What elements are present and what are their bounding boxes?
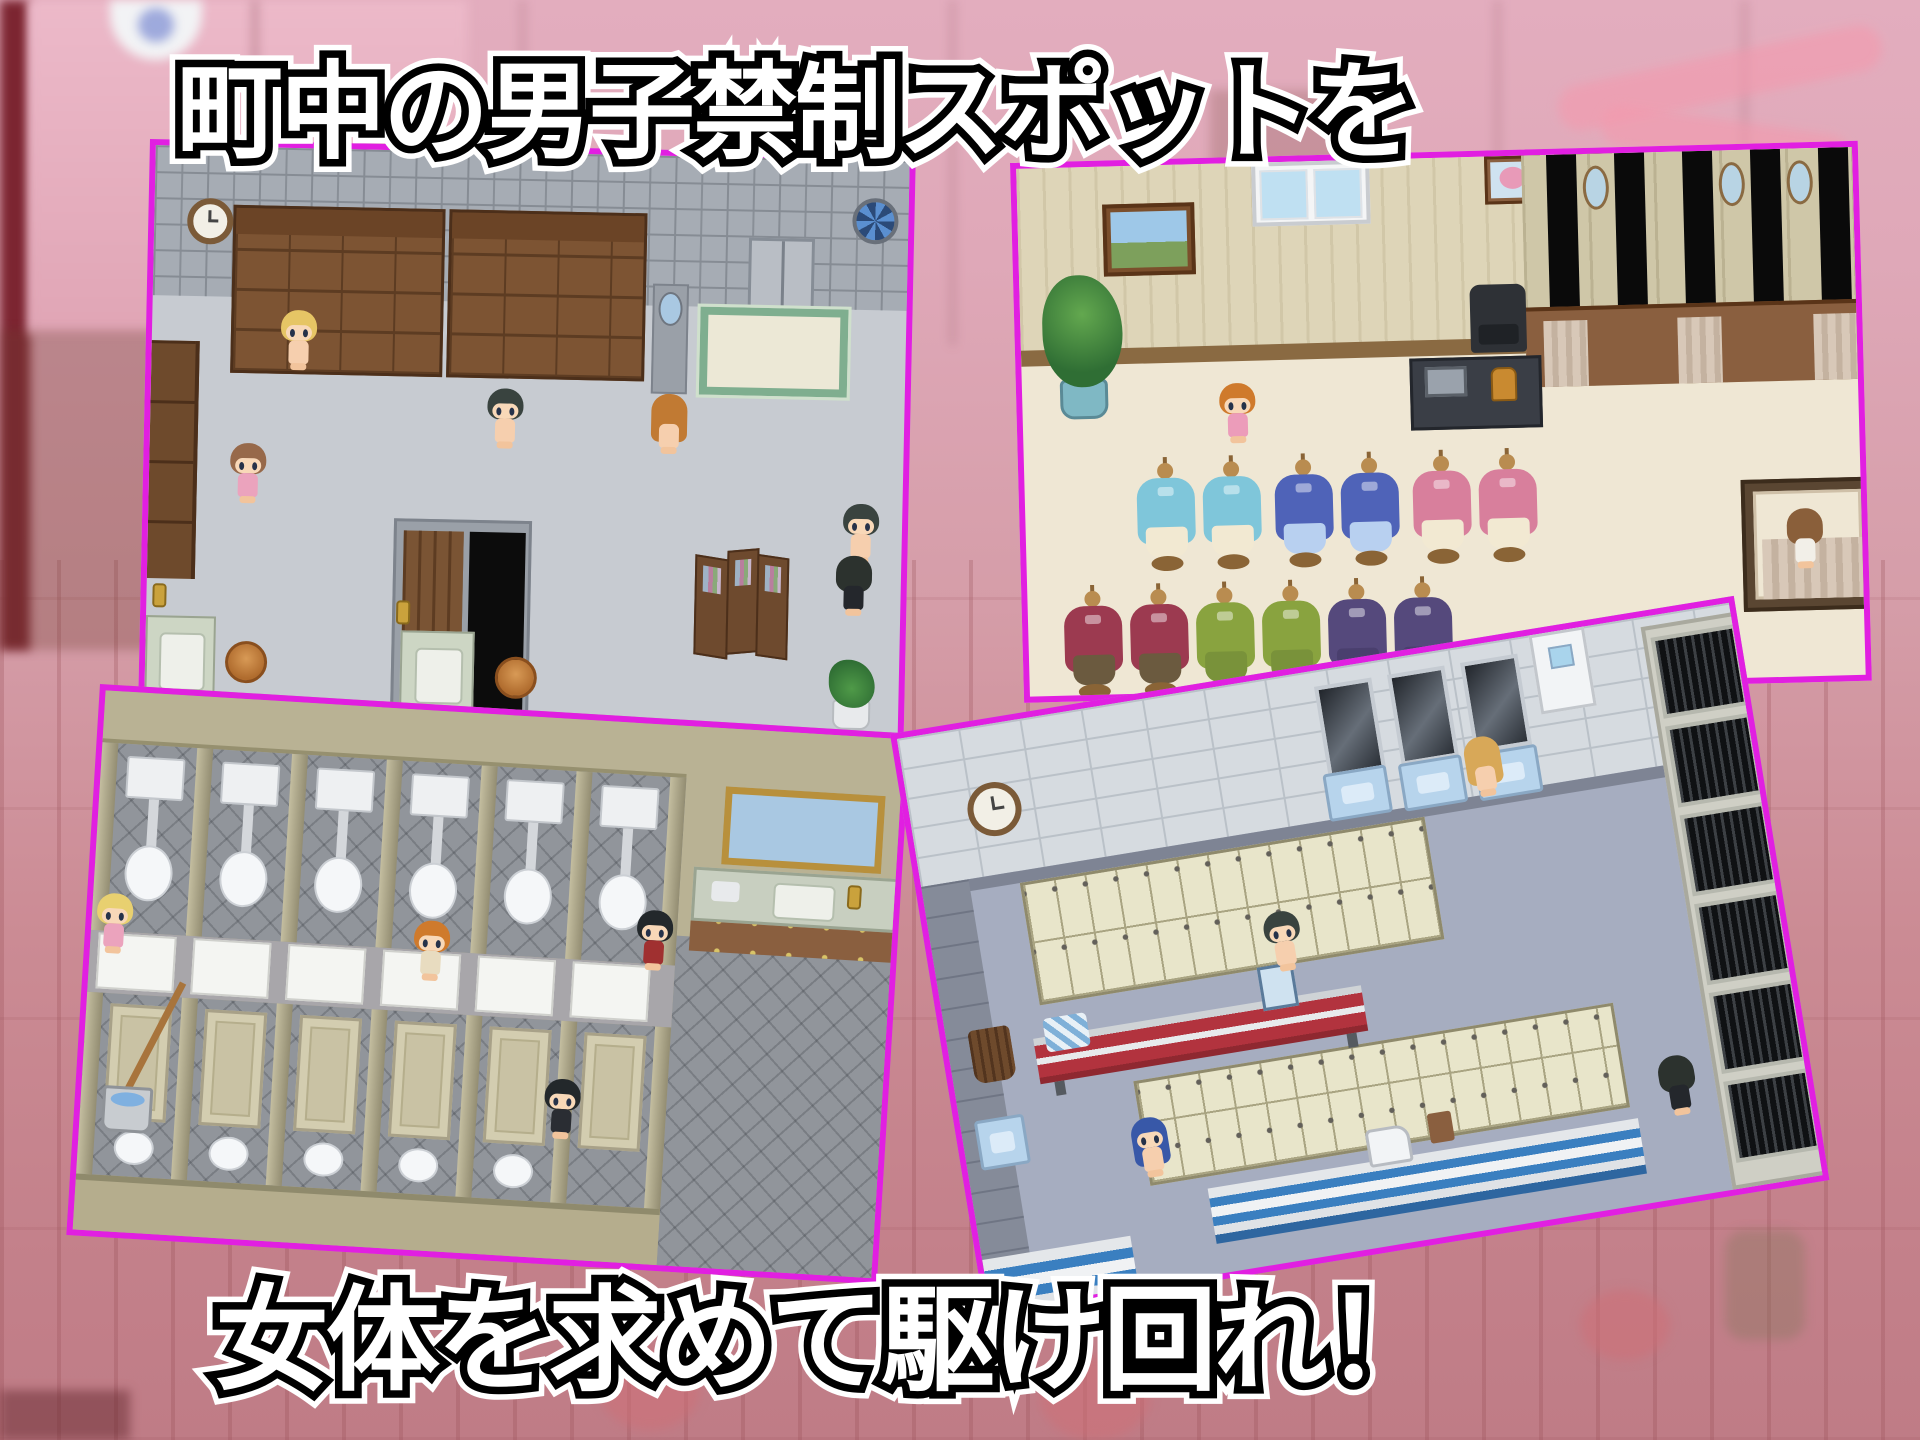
headline-top-fill: 町中の男子禁制スポットを <box>170 26 1420 180</box>
chibi-character <box>649 394 688 457</box>
mannequin-head <box>1084 591 1100 607</box>
chibi-character <box>228 443 267 506</box>
toilet-tank <box>220 762 280 807</box>
towel <box>1042 1012 1091 1053</box>
vent-grate <box>1694 890 1792 985</box>
mannequin-head <box>1348 584 1364 600</box>
mannequin-bow <box>1295 483 1311 492</box>
background-stool-blob <box>1580 1290 1670 1360</box>
white-stall-door <box>475 956 556 1017</box>
dress-mannequin <box>1136 462 1197 571</box>
chibi-character <box>1218 383 1258 446</box>
headline-bottom: 女体を求めて駆け回れ！ 女体を求めて駆け回れ！ 女体を求めて駆け回れ！ <box>215 1248 1355 1388</box>
chair-seat <box>1478 324 1519 345</box>
mannequin-skirt <box>1212 525 1255 556</box>
laundry-basket <box>967 1025 1017 1085</box>
headline-bottom-fill: 女体を求めて駆け回れ！ <box>215 1248 1355 1413</box>
soap-bottle <box>396 600 410 624</box>
folding-screen <box>693 554 729 659</box>
character-face <box>492 403 518 419</box>
character-face <box>235 458 261 474</box>
character-body <box>1668 1084 1692 1111</box>
screenshot-changing-room <box>138 139 916 747</box>
dress-mannequin <box>1340 457 1401 566</box>
toilet-tank <box>599 785 659 830</box>
character-body <box>659 424 679 448</box>
table-clock-icon <box>1491 367 1518 402</box>
bucket-water <box>110 1091 145 1107</box>
background-figure-blur <box>1725 1230 1805 1340</box>
character-body <box>550 1108 571 1133</box>
gold-mirror <box>721 786 885 874</box>
cubby-shelf <box>446 209 647 381</box>
character-body <box>1141 1146 1165 1173</box>
character-face <box>418 935 445 952</box>
character-face <box>1224 398 1250 414</box>
mannequin-head <box>1223 461 1239 477</box>
character-body <box>420 950 441 975</box>
bench-leg <box>1054 1080 1066 1095</box>
mannequin-bow <box>1361 481 1377 490</box>
folding-screen <box>725 548 759 655</box>
character-body <box>850 534 870 558</box>
elevator-door-split <box>781 241 785 309</box>
chibi-character <box>1655 1053 1703 1120</box>
mannequin-head <box>1433 456 1449 472</box>
towel-stack <box>711 881 740 903</box>
shelf-top <box>452 212 645 242</box>
character-body <box>495 418 515 442</box>
curtain <box>1677 316 1723 383</box>
vent-grate <box>1709 979 1807 1074</box>
mannequin-head <box>1361 457 1377 473</box>
chibi-character <box>410 920 452 984</box>
dress-mannequin <box>1478 453 1539 562</box>
mannequin-skirt <box>1350 521 1393 552</box>
fitting-room-lower-wall <box>1525 299 1870 388</box>
door-window <box>1548 644 1575 670</box>
mannequin-bow <box>1349 608 1365 617</box>
vent-grate <box>1723 1068 1821 1163</box>
chibi-character <box>486 388 525 451</box>
mannequin-head <box>1157 463 1173 479</box>
curtain <box>1543 320 1589 387</box>
mannequin-bow <box>1217 611 1233 620</box>
character-body <box>643 940 664 965</box>
white-stall-door <box>285 944 366 1005</box>
chibi-character <box>834 555 873 618</box>
toilet-tank <box>315 767 375 812</box>
character-face <box>641 925 668 942</box>
character-face <box>101 908 128 925</box>
mannequin-head <box>1216 587 1232 603</box>
laptop-icon <box>1424 366 1467 397</box>
screenshot-boutique <box>1010 141 1872 703</box>
elevator-doors <box>748 238 816 313</box>
mannequin-head <box>1282 586 1298 602</box>
mannequin-bow <box>1433 480 1449 489</box>
mannequin-skirt <box>1487 518 1530 549</box>
mannequin-bow <box>1085 615 1101 624</box>
mannequin-bow <box>1499 478 1515 487</box>
soap-bottle <box>152 583 166 607</box>
dress-mannequin <box>1063 590 1124 699</box>
mirror-icon <box>658 292 683 326</box>
bench-leg <box>1347 1033 1359 1048</box>
background-corner-clutter <box>0 1390 130 1440</box>
character-face <box>848 519 874 535</box>
white-stall-door <box>190 938 271 999</box>
plant-leaves <box>828 659 875 708</box>
mannequin-base <box>1217 554 1249 570</box>
mannequin-skirt <box>1073 654 1116 685</box>
mannequin-skirt <box>1146 526 1189 557</box>
folding-screen <box>755 554 789 661</box>
onsen-mark-icon <box>138 8 174 42</box>
mannequin-skirt <box>1421 519 1464 550</box>
counter-desk <box>1409 355 1543 430</box>
kettle <box>1364 1123 1414 1168</box>
headline-top: 町中の男子禁制スポットを 町中の男子禁制スポットを 町中の男子禁制スポットを <box>170 26 1420 156</box>
washstand-floor <box>656 936 903 1285</box>
mannequin-base <box>1151 556 1183 572</box>
chibi-character <box>541 1078 583 1142</box>
mannequin-head <box>1414 582 1430 598</box>
mannequin-base <box>1493 547 1525 563</box>
beige-stall-door <box>198 1009 267 1129</box>
mirror-stand <box>651 284 689 395</box>
character-body <box>1795 538 1816 563</box>
beige-stall-door <box>578 1032 647 1152</box>
character-body <box>238 473 258 497</box>
toilet-tank <box>125 756 185 801</box>
mannequin-bow <box>1415 606 1431 615</box>
vent-grate <box>1665 713 1763 808</box>
background-shelf-shadow <box>0 330 160 650</box>
toilet-tank <box>504 779 564 824</box>
mannequin-base <box>1355 550 1387 566</box>
character-body <box>1474 765 1498 792</box>
washbasin <box>974 1113 1031 1170</box>
character-face <box>286 325 312 341</box>
wooden-cabinet <box>147 340 200 579</box>
curtain <box>1813 313 1859 380</box>
cup <box>1427 1110 1456 1143</box>
dress-mannequin <box>1129 589 1190 698</box>
office-chair <box>1469 284 1527 353</box>
soap-bottle <box>847 885 862 910</box>
character-body <box>843 586 863 610</box>
toilet-tank <box>410 773 470 818</box>
vent-grate <box>1650 624 1748 719</box>
dress-mannequin <box>1412 455 1473 564</box>
character-body <box>1274 939 1298 966</box>
bath-stool <box>494 656 537 699</box>
mannequin-base <box>1289 552 1321 568</box>
sink-basin <box>772 883 836 923</box>
floor-rug <box>699 307 849 398</box>
chibi-character <box>633 909 675 973</box>
beige-stall-door <box>293 1015 362 1135</box>
mannequin-base <box>1079 684 1111 700</box>
mannequin-bow <box>1158 487 1174 496</box>
mannequin-bow <box>1283 610 1299 619</box>
mannequin-base <box>1427 548 1459 564</box>
dress-mannequin <box>1274 459 1335 568</box>
mannequin-bow <box>1224 485 1240 494</box>
chibi-character <box>279 310 318 373</box>
chibi-character <box>1785 508 1825 571</box>
painting-canvas <box>1110 210 1187 268</box>
character-body <box>103 923 124 948</box>
cubby-shelf <box>230 205 445 377</box>
promo-image: 町中の男子禁制スポットを 町中の男子禁制スポットを 町中の男子禁制スポットを 女… <box>0 0 1920 1440</box>
character-body <box>1228 413 1249 438</box>
shelf-top <box>236 208 442 238</box>
mannequin-head <box>1295 459 1311 475</box>
washbasin <box>1398 754 1469 812</box>
beige-stall-door <box>388 1021 457 1141</box>
character-face <box>549 1093 576 1110</box>
bath-stool <box>225 641 268 684</box>
mannequin-head <box>1150 589 1166 605</box>
mannequin-bow <box>1151 613 1167 622</box>
landscape-painting <box>1102 202 1196 276</box>
mannequin-skirt <box>1139 653 1182 684</box>
mannequin-head <box>1499 454 1515 470</box>
dress-mannequin <box>1202 461 1263 570</box>
washbasin <box>1322 764 1393 822</box>
bucket <box>101 1085 154 1134</box>
character-body <box>288 340 308 364</box>
vent-grate <box>1680 802 1778 897</box>
screenshot-toilets <box>66 684 910 1285</box>
mannequin-skirt <box>1284 523 1327 554</box>
chibi-character <box>93 892 135 956</box>
